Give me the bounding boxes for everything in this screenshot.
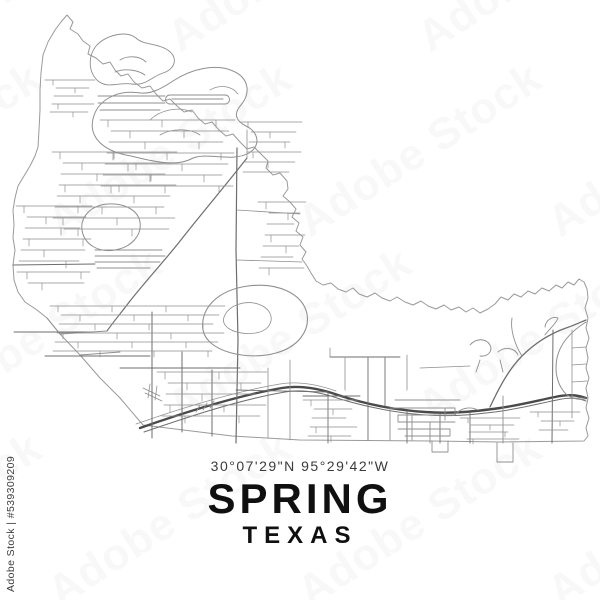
- stock-id-text: Adobe Stock | #539309209: [5, 452, 17, 592]
- title-block: 30°07'29"N 95°29'42"W SPRING TEXAS: [0, 458, 600, 547]
- state-name: TEXAS: [0, 525, 600, 547]
- stock-image-canvas: Adobe StockAdobe StockAdobe StockAdobe S…: [0, 0, 600, 600]
- city-name: SPRING: [0, 481, 600, 517]
- coordinates-text: 30°07'29"N 95°29'42"W: [0, 458, 600, 474]
